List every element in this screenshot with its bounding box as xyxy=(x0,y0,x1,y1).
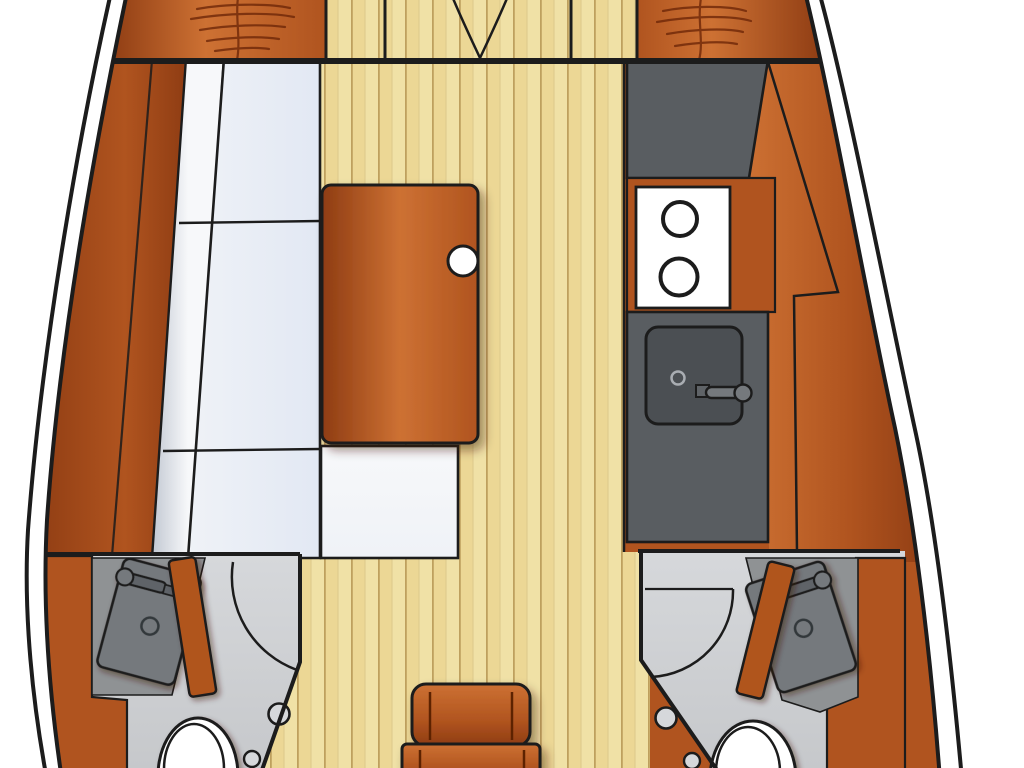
interior xyxy=(0,0,1024,768)
flush-button-icon xyxy=(244,751,260,767)
yacht-floor-plan xyxy=(0,0,1024,768)
saloon-table xyxy=(322,185,478,443)
galley-counter-top xyxy=(627,60,768,178)
burner-icon xyxy=(663,202,697,236)
galley-sink-basin xyxy=(646,327,742,424)
burner-icon xyxy=(661,259,698,296)
companionway-steps xyxy=(402,684,540,768)
flush-button-icon xyxy=(684,753,700,768)
door-knob-icon xyxy=(656,708,677,729)
floor-plan-canvas xyxy=(0,0,1024,768)
settee-bottom-bench xyxy=(321,446,458,558)
galley xyxy=(627,60,775,542)
port-head xyxy=(40,554,300,768)
cup-holder xyxy=(448,246,478,276)
